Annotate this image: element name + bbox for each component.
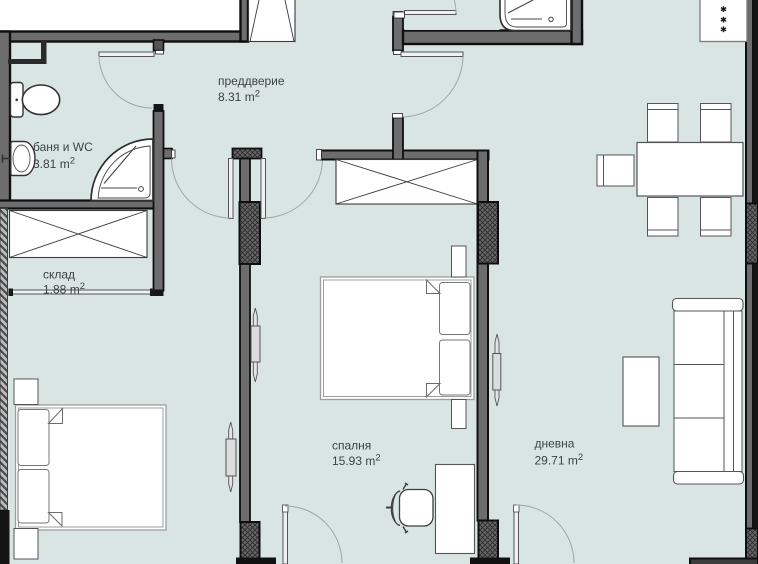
svg-text:3.81 m2: 3.81 m2 [33,156,75,172]
svg-text:8.31 m2: 8.31 m2 [218,89,260,105]
svg-text:1.88 m2: 1.88 m2 [43,281,85,297]
svg-text:баня и WC: баня и WC [33,140,93,154]
svg-text:склад: склад [43,268,75,282]
svg-text:29.71 m2: 29.71 m2 [535,452,584,468]
svg-text:преддверие: преддверие [218,74,285,88]
svg-text:спалня: спалня [332,439,371,453]
svg-text:15.93 m2: 15.93 m2 [332,453,381,469]
svg-text:дневна: дневна [535,437,575,451]
